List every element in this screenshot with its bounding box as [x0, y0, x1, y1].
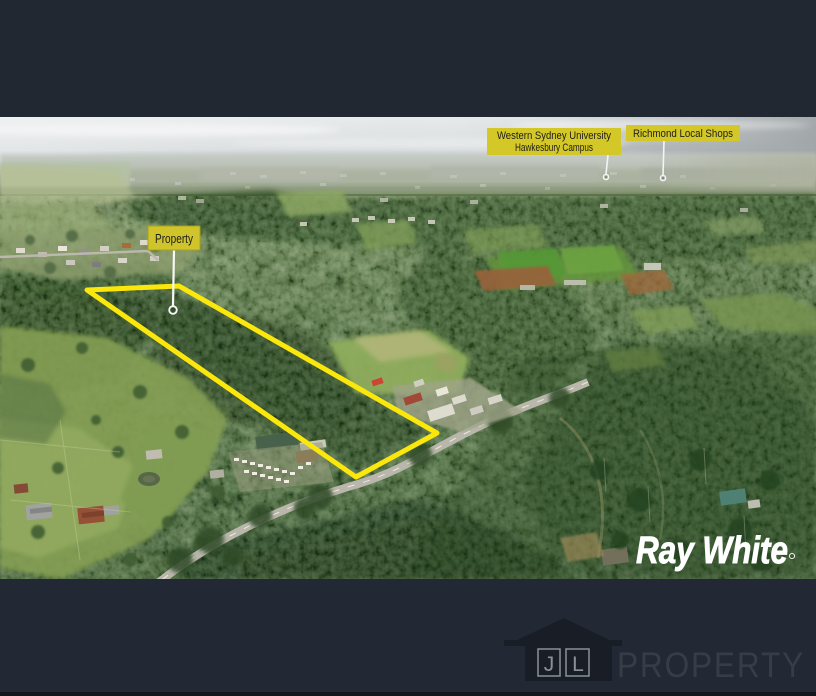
svg-text:L: L — [572, 653, 584, 676]
svg-text:Ray White: Ray White — [636, 530, 788, 572]
svg-text:J: J — [544, 653, 555, 676]
svg-text:Hawkesbury Campus: Hawkesbury Campus — [515, 142, 593, 154]
svg-text:Western Sydney University: Western Sydney University — [497, 130, 611, 142]
svg-text:Property: Property — [155, 231, 193, 246]
svg-text:Richmond Local Shops: Richmond Local Shops — [633, 128, 733, 140]
svg-text:PROPERTY: PROPERTY — [617, 646, 805, 685]
